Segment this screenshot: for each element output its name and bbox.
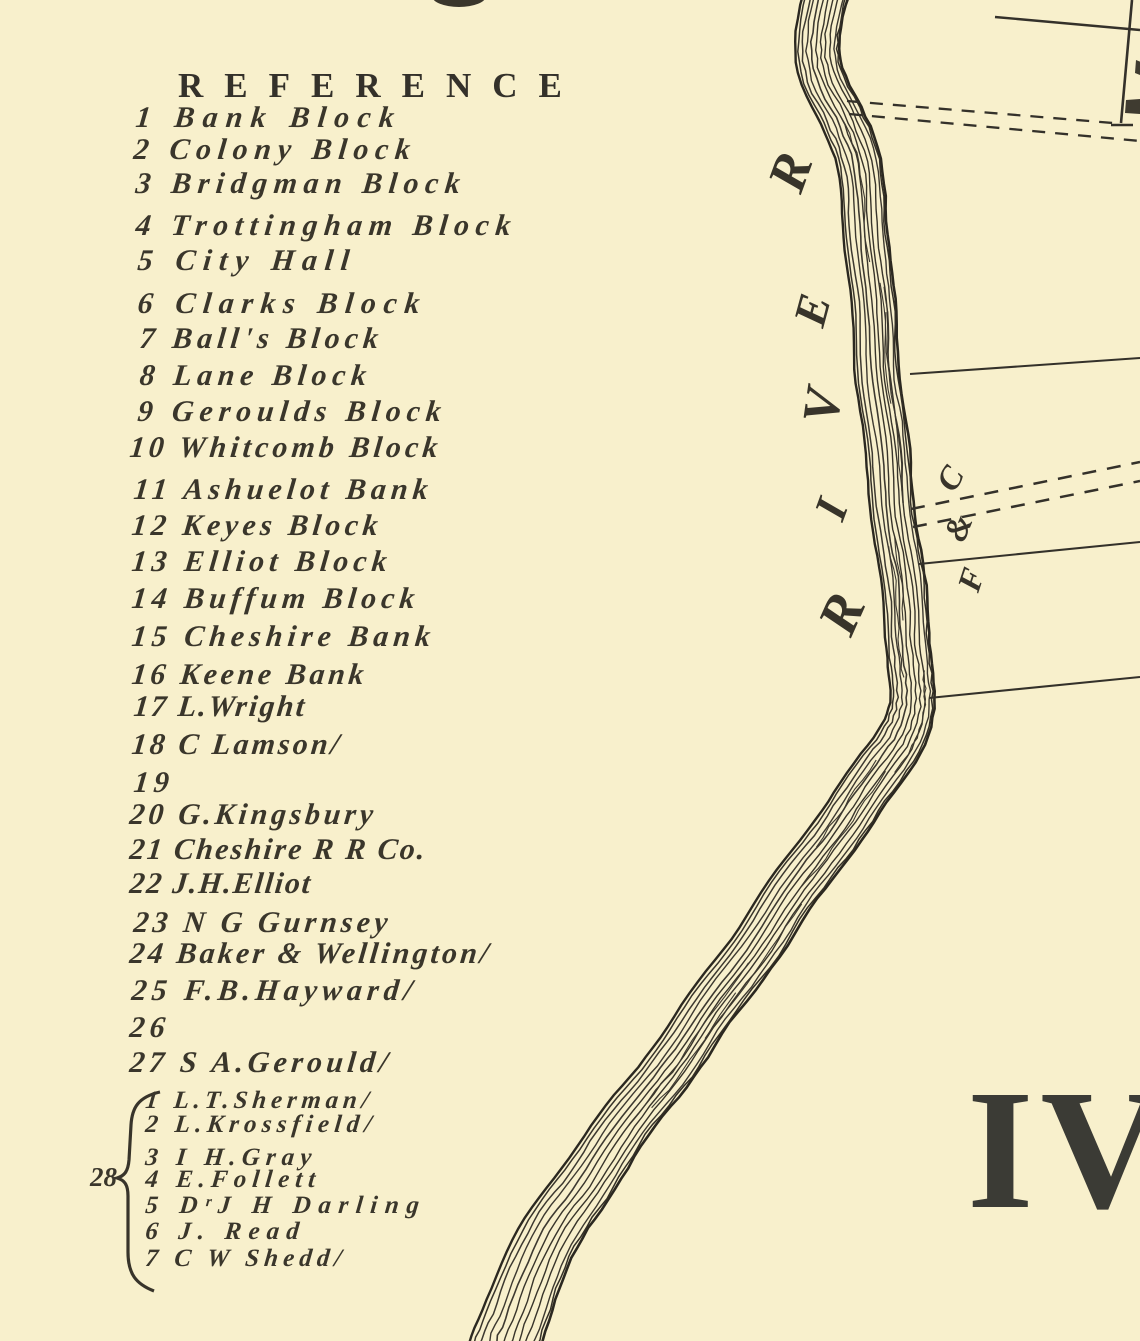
svg-text:R: R (806, 584, 878, 644)
svg-text:F: F (951, 564, 992, 597)
svg-text:V: V (792, 381, 854, 428)
svg-text:R: R (755, 145, 824, 200)
svg-text:I: I (804, 490, 859, 527)
svg-text:E: E (783, 289, 840, 333)
svg-text:C: C (930, 460, 973, 498)
